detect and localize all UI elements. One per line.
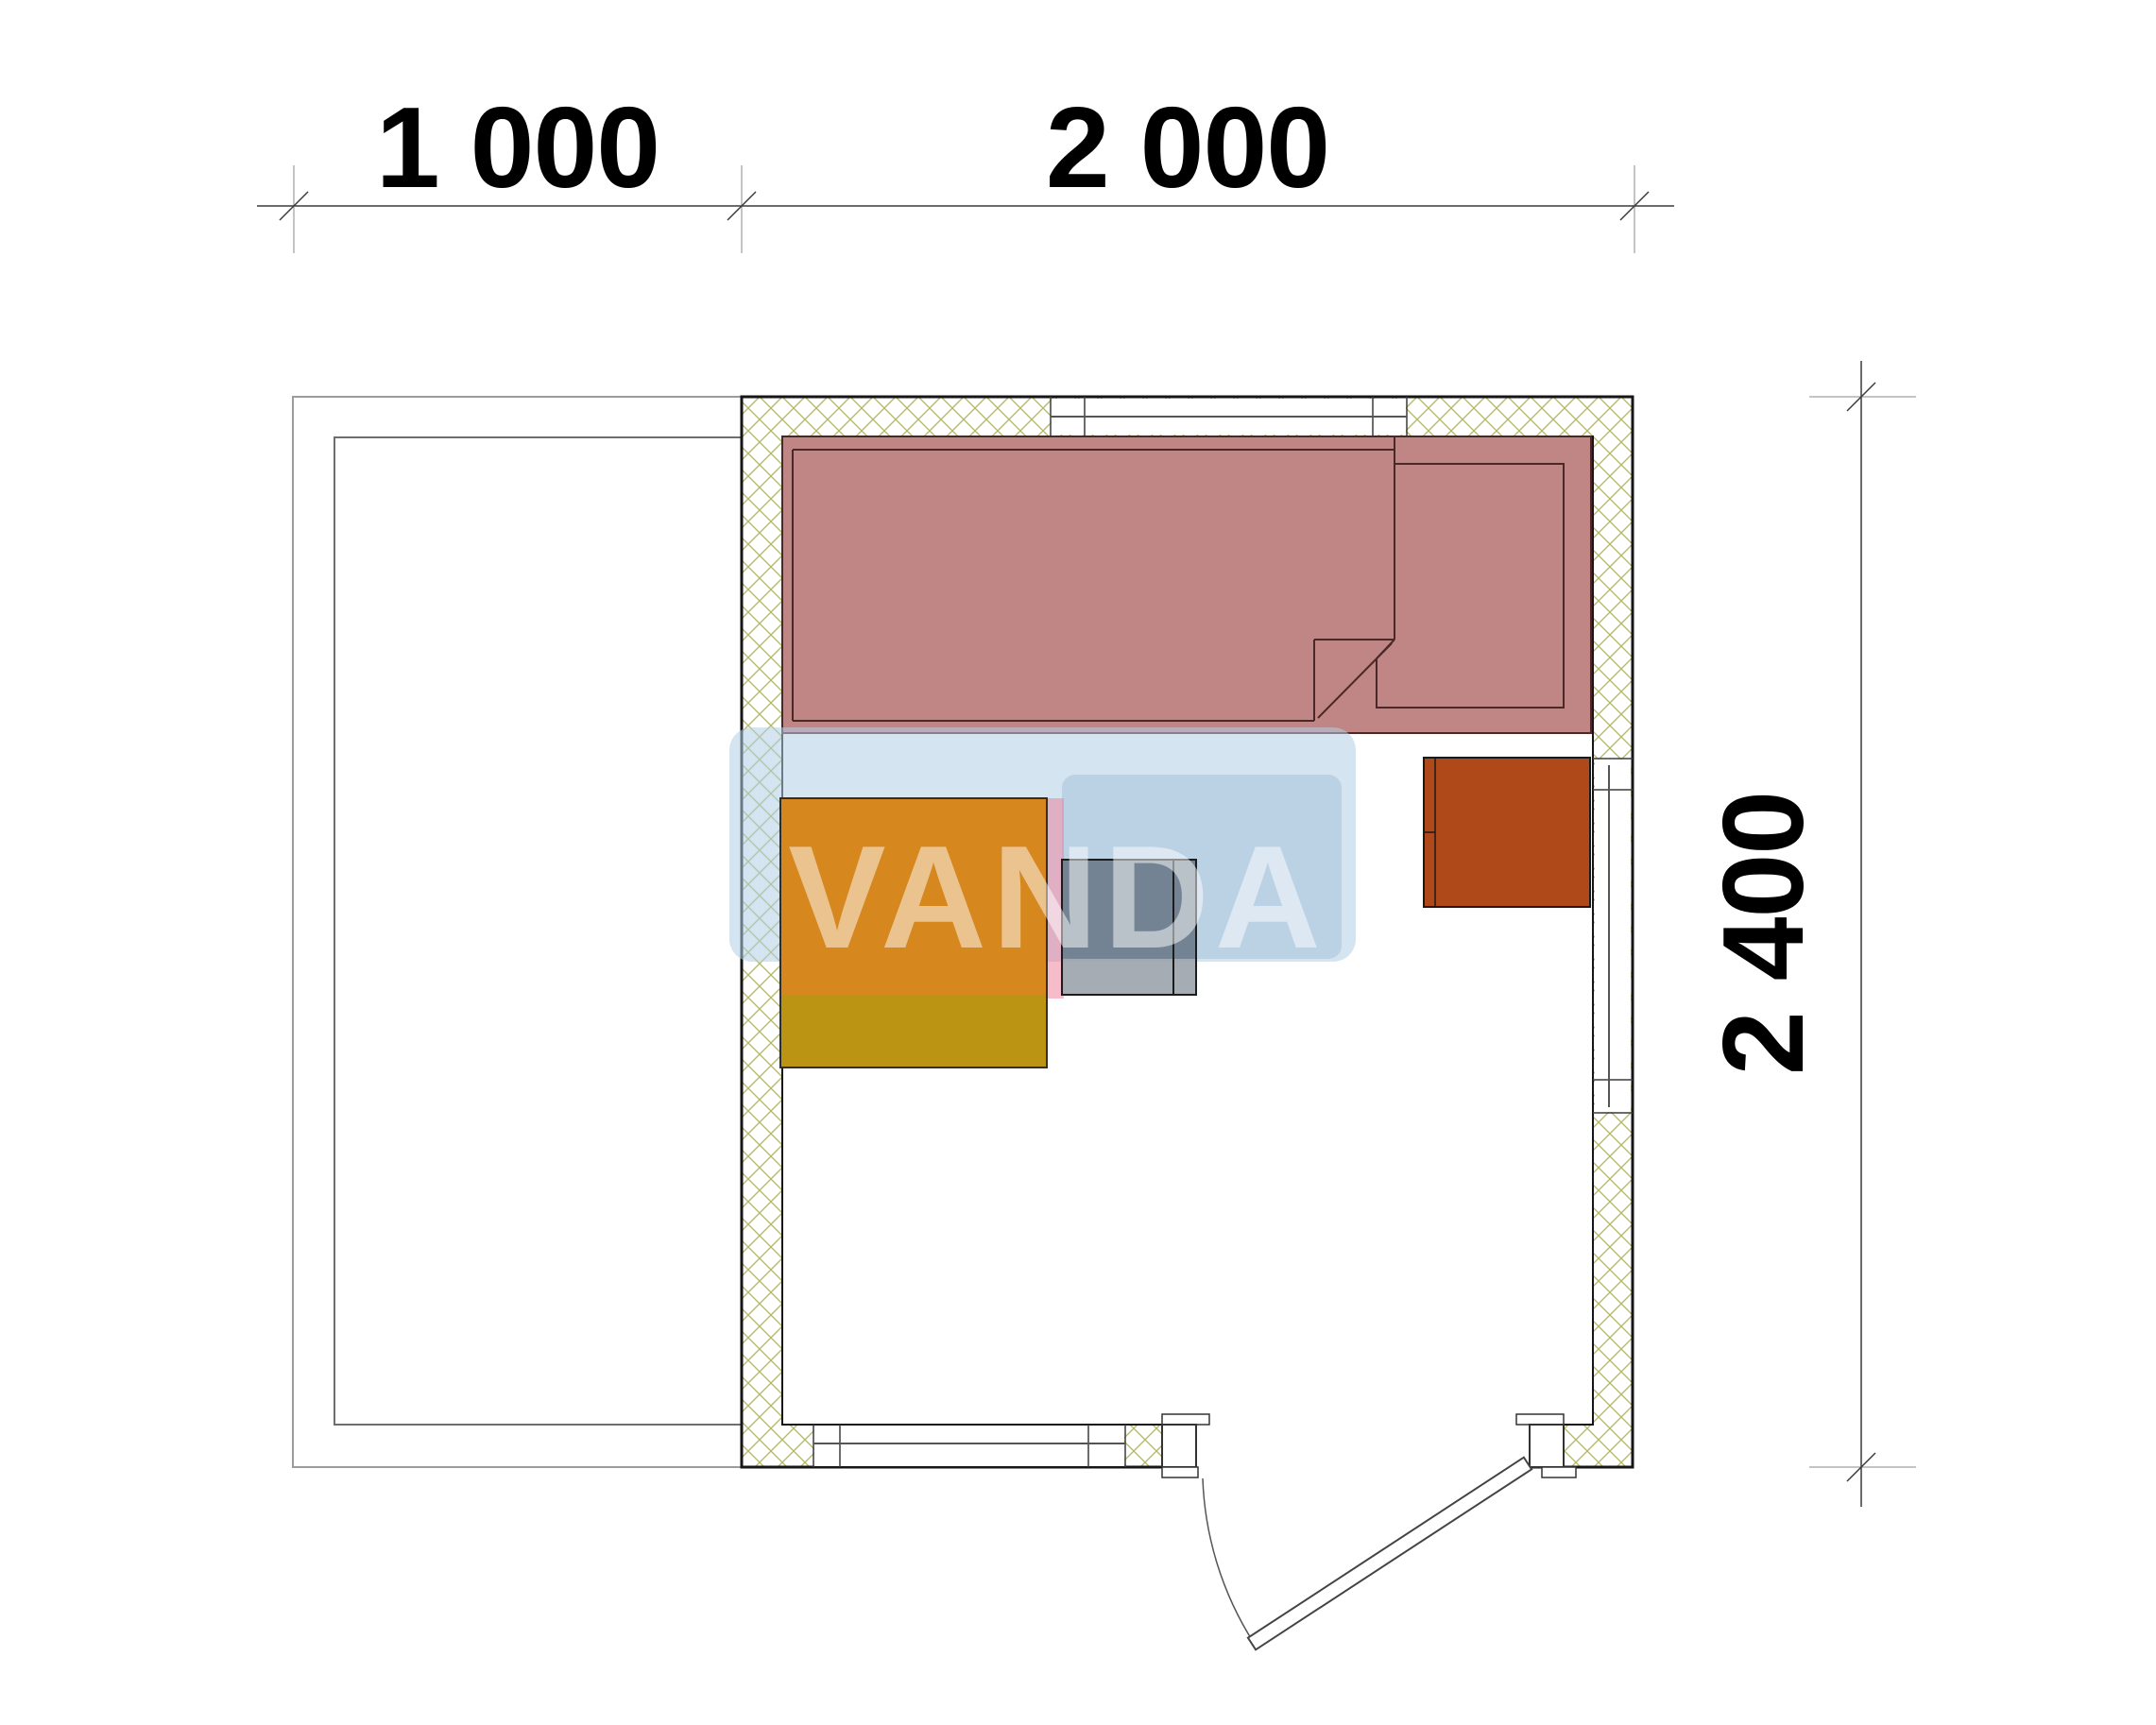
door-left-jamb-tab-bottom [1162, 1467, 1198, 1477]
door-right-jamb [1530, 1425, 1564, 1467]
heater-body [1424, 758, 1590, 907]
door-left-jamb-tab-top [1162, 1414, 1209, 1425]
door-leaf [1248, 1458, 1531, 1650]
dimension-right-value: 2 400 [1699, 792, 1827, 1075]
terrace [293, 397, 742, 1467]
dimension-top-left-value: 1 000 [376, 83, 659, 212]
door-right-jamb-tab-top [1516, 1414, 1564, 1425]
window-right-opening [1595, 760, 1631, 1112]
dimension-top: 1 000 2 000 [257, 83, 1674, 253]
watermark-text: VANDA [788, 815, 1326, 979]
door-swing-arc [1203, 1478, 1254, 1643]
floor-plan-page: VANDA 1 000 2 000 2 400 [0, 0, 2156, 1725]
door [1162, 1411, 1576, 1649]
window-right [1593, 759, 1633, 1113]
heater [1424, 758, 1590, 907]
door-left-jamb [1162, 1425, 1196, 1467]
door-opening [1196, 1411, 1529, 1479]
floor-plan-drawing: VANDA 1 000 2 000 2 400 [0, 0, 2156, 1725]
terrace-inner-outline [334, 437, 742, 1425]
dimension-right: 2 400 [1699, 361, 1916, 1507]
bench-slab [782, 436, 1591, 733]
window-top [1051, 397, 1407, 436]
table-bottom-part [780, 995, 1047, 1067]
door-right-jamb-tab-bottom [1542, 1467, 1576, 1477]
sauna-benches [782, 436, 1591, 733]
window-bottom-opening [814, 1426, 1124, 1466]
window-bottom [813, 1425, 1125, 1467]
terrace-outer-outline [293, 397, 742, 1467]
dimension-top-right-value: 2 000 [1046, 83, 1329, 212]
